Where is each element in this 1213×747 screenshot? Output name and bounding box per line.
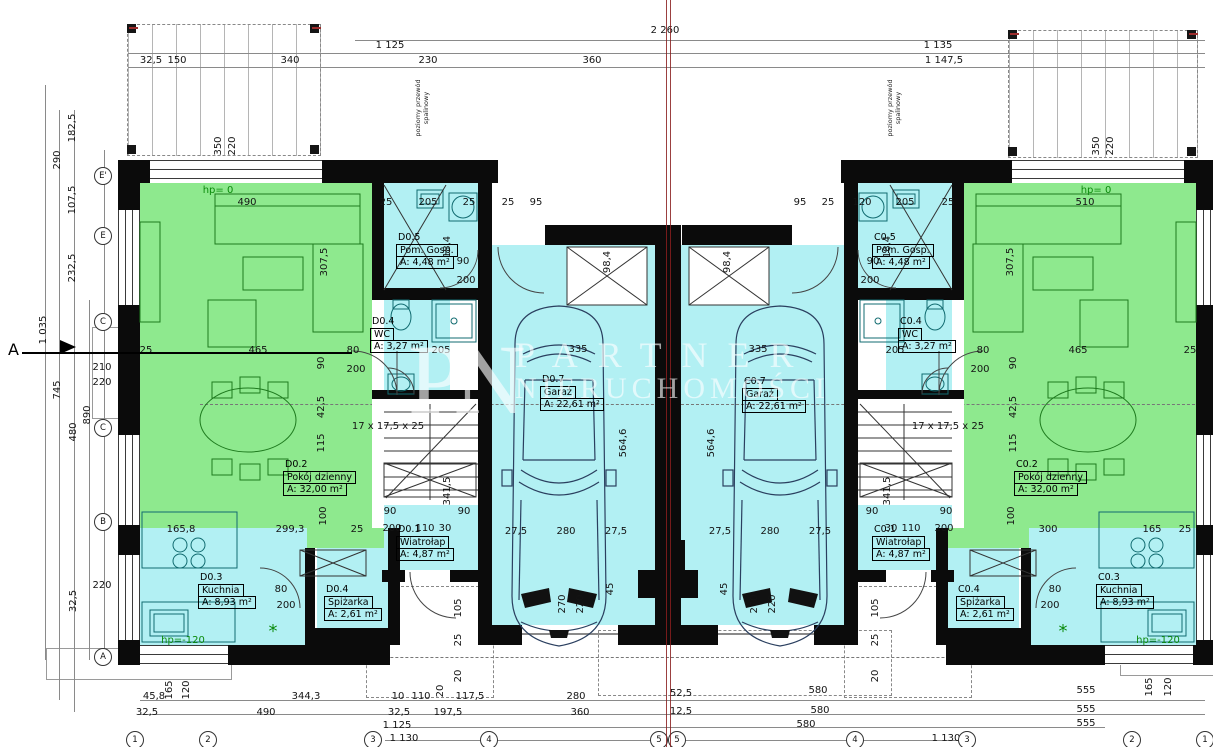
dimension-label: 580 <box>808 686 827 696</box>
dimension-line <box>718 633 814 635</box>
wall-segment <box>618 625 656 645</box>
section-mark-a: A <box>8 340 19 359</box>
dimension-label: 110 <box>415 524 434 534</box>
dimension-label: 480 <box>69 422 79 441</box>
room-name: Kuchnia <box>1096 584 1142 597</box>
dimension-label: 90 <box>457 257 470 267</box>
dimension-label: 45 <box>720 583 730 596</box>
dimension-label: 490 <box>256 708 275 718</box>
dimension-label: 90 <box>1009 357 1019 370</box>
room-fill-living-right-strip <box>948 528 1029 548</box>
dimension-label: 205 <box>418 198 437 208</box>
grid-bubble-2: 2 <box>1123 731 1141 747</box>
room-label-wc: D0.4WCA: 3,27 m² <box>370 316 428 353</box>
terrace-top-right <box>1008 30 1198 158</box>
dimension-label: 110 <box>411 692 430 702</box>
dimension-label: 200 <box>382 524 401 534</box>
dimension-label: 80 <box>347 346 360 356</box>
dimension-label: 32,5 <box>136 708 158 718</box>
dimension-label: 32,5 <box>69 590 79 612</box>
dimension-label: 95 <box>530 198 543 208</box>
dimension-label: 490 <box>237 198 256 208</box>
room-name: Spiżarka <box>956 596 1005 609</box>
dimension-label: 20 <box>436 685 446 698</box>
dimension-label: 465 <box>1068 346 1087 356</box>
grid-bubble-3: 3 <box>958 731 976 747</box>
dimension-label: 25 <box>454 634 464 647</box>
room-area: A: 4,48 m² <box>872 256 930 269</box>
dimension-label: 90 <box>866 507 879 517</box>
dimension-label: 117,5 <box>456 692 485 702</box>
dimension-label: 25 <box>380 198 393 208</box>
dimension-label: 165 <box>1145 677 1155 696</box>
dimension-label: 200 <box>970 365 989 375</box>
drawing-element: spalinowy <box>422 92 430 124</box>
survey-mark <box>1189 33 1198 35</box>
dimension-label: 42,5 <box>1009 396 1019 418</box>
wall-segment <box>936 628 1031 645</box>
dimension-label: 98,4 <box>723 251 733 273</box>
room-code: D0.3 <box>200 572 256 583</box>
grid-bubble-c: C <box>94 313 112 331</box>
dimension-label: 90 <box>317 357 327 370</box>
dimension-label: 232,5 <box>68 254 78 283</box>
room-name: Wiatrołap <box>396 536 449 549</box>
dimension-label: 465 <box>248 346 267 356</box>
dimension-label: 115 <box>1009 433 1019 452</box>
dimension-line <box>522 633 618 635</box>
wall-segment <box>1021 548 1031 628</box>
dimension-label: 42,5 <box>317 396 327 418</box>
room-name: Garaż <box>540 386 576 399</box>
room-area: A: 8,93 m² <box>1096 596 1154 609</box>
dimension-label: 115 <box>317 433 327 452</box>
dimension-label: 20 <box>871 670 881 683</box>
dimension-label: 107,5 <box>68 186 78 215</box>
room-area: A: 32,00 m² <box>283 483 347 496</box>
dimension-label: 580 <box>796 720 815 730</box>
dimension-label: 25 <box>1179 525 1192 535</box>
room-code: D0.7 <box>542 374 604 385</box>
dimension-line <box>355 40 1205 41</box>
dimension-label: 27,5 <box>605 527 627 537</box>
dimension-label: 90 <box>458 507 471 517</box>
wall-segment <box>682 225 792 245</box>
dimension-label: 197,5 <box>434 708 463 718</box>
grid-bubble-2: 2 <box>199 731 217 747</box>
wall-segment <box>372 390 478 399</box>
pergola-post <box>1187 147 1196 156</box>
dimension-label: 555 <box>1076 705 1095 715</box>
dimension-label: 200 <box>1040 601 1059 611</box>
dimension-label: 200 <box>346 365 365 375</box>
wall-segment <box>305 548 315 628</box>
room-code: D0.4 <box>372 316 428 327</box>
room-fill-garage-left <box>492 245 655 625</box>
room-name: Pokój dzienny <box>283 471 356 484</box>
dimension-line <box>45 85 46 660</box>
drawing-element: spalinowy <box>894 92 902 124</box>
dimension-label: * <box>269 627 278 637</box>
dimension-label: 120 <box>852 198 871 208</box>
dimension-label: 25 <box>942 198 955 208</box>
room-code: D0.4 <box>326 584 382 595</box>
dimension-label: 335 <box>748 345 767 355</box>
door-opening <box>405 570 450 582</box>
dimension-label: 25 <box>140 346 153 356</box>
dimension-label: 17 x 17,5 x 25 <box>352 422 424 432</box>
dimension-label: 220 <box>92 378 111 388</box>
dimension-label: 45,8 <box>143 692 165 702</box>
dimension-label: 299,3 <box>276 525 305 535</box>
dimension-label: 220 <box>576 594 586 613</box>
dimension-label: 280 <box>760 527 779 537</box>
dimension-label: 280 <box>556 527 575 537</box>
room-label-gara-: D0.7GarażA: 22,61 m² <box>540 374 604 411</box>
dimension-label: 564,6 <box>707 429 717 458</box>
dimension-label: 335 <box>568 345 587 355</box>
window <box>1012 160 1184 183</box>
dimension-label: 100 <box>1007 506 1017 525</box>
window <box>118 435 140 525</box>
window <box>140 645 228 665</box>
dimension-label: 360 <box>582 56 601 66</box>
dimension-label: 220 <box>92 581 111 591</box>
dimension-label: 555 <box>1076 719 1095 729</box>
drawing-element <box>875 318 881 324</box>
dimension-line <box>89 300 90 660</box>
staircase-left <box>372 398 478 502</box>
grid-bubble-3: 3 <box>364 731 382 747</box>
dimension-label: 105 <box>871 598 881 617</box>
room-code: C0.3 <box>1098 572 1154 583</box>
window <box>118 210 140 305</box>
wall-segment <box>858 288 964 300</box>
room-label-gara-: C0.7GarażA: 22,61 m² <box>742 376 806 413</box>
room-code: C0.7 <box>744 376 806 387</box>
survey-mark <box>312 27 321 29</box>
dimension-label: 27,5 <box>709 527 731 537</box>
dimension-label: 890 <box>83 405 93 424</box>
window <box>1105 645 1193 665</box>
dimension-label: 90 <box>384 507 397 517</box>
dimension-label: hp=-120 <box>1136 636 1180 646</box>
room-label-kuchnia: C0.3KuchniaA: 8,93 m² <box>1096 572 1154 609</box>
dimension-label: 30 <box>885 524 898 534</box>
dimension-label: 25 <box>463 198 476 208</box>
dimension-label: 350 <box>1092 136 1102 155</box>
door-opening <box>886 570 931 582</box>
dimension-label: 32,5 <box>140 56 162 66</box>
wall-segment <box>490 625 522 645</box>
dimension-label: 18,4 <box>883 236 893 258</box>
grid-bubble-e: E <box>94 227 112 245</box>
room-code: C0.4 <box>958 584 1014 595</box>
room-area: A: 4,87 m² <box>872 548 930 561</box>
dimension-label: 200 <box>276 601 295 611</box>
dimension-label: 45 <box>606 583 616 596</box>
drawing-element: poziomy przewód <box>886 79 894 136</box>
dimension-label: 307,5 <box>1006 248 1016 277</box>
pergola-post <box>1008 147 1017 156</box>
grid-bubble-a: A <box>94 648 112 666</box>
dimension-label: 12,5 <box>670 707 692 717</box>
dimension-label: 165 <box>165 680 175 699</box>
dimension-label: 32,5 <box>388 708 410 718</box>
window <box>1196 210 1213 305</box>
dimension-label: 120 <box>1164 677 1174 696</box>
dimension-label: 1 147,5 <box>925 56 963 66</box>
party-wall-axis <box>670 0 671 747</box>
dimension-label: 341,5 <box>883 477 893 506</box>
flue-note: poziomy przewódspalinowy <box>886 43 910 173</box>
room-label-wc: C0.4WCA: 3,27 m² <box>898 316 956 353</box>
party-wall-axis <box>666 0 667 747</box>
room-label-pok-j-dzienny: C0.2Pokój dziennyA: 32,00 m² <box>1014 459 1087 496</box>
dimension-label: 20 <box>454 670 464 683</box>
room-area: A: 3,27 m² <box>370 340 428 353</box>
staircase-right <box>858 398 964 502</box>
dimension-label: 200 <box>456 276 475 286</box>
room-area: A: 32,00 m² <box>1014 483 1078 496</box>
dimension-label: 25 <box>502 198 515 208</box>
dimension-label: 340 <box>280 56 299 66</box>
survey-mark <box>1010 33 1019 35</box>
drawing-element: poziomy przewód <box>414 79 422 136</box>
room-area: A: 2,61 m² <box>956 608 1014 621</box>
dimension-label: 100 <box>319 506 329 525</box>
room-area: A: 2,61 m² <box>324 608 382 621</box>
dimension-label: 205 <box>431 346 450 356</box>
dimension-label: 80 <box>275 585 288 595</box>
dimension-label: 165,8 <box>167 525 196 535</box>
dimension-label: 110 <box>901 524 920 534</box>
room-name: Garaż <box>742 388 778 401</box>
dimension-label: 25 <box>822 198 835 208</box>
dimension-label: 25 <box>1184 346 1197 356</box>
dimension-label: 300 <box>1038 525 1057 535</box>
dimension-label: 290 <box>53 150 63 169</box>
section-line <box>22 352 352 354</box>
dimension-label: 1 035 <box>39 316 49 345</box>
dimension-label: 10 <box>392 692 405 702</box>
dimension-label: 230 <box>418 56 437 66</box>
grid-bubble-1: 1 <box>126 731 144 747</box>
dimension-label: 95 <box>794 198 807 208</box>
dimension-label: 27,5 <box>809 527 831 537</box>
dimension-label: 80 <box>977 346 990 356</box>
dimension-label: 18,4 <box>443 236 453 258</box>
window <box>118 555 140 640</box>
grid-bubble-e': E' <box>94 167 112 185</box>
dimension-label: 182,5 <box>68 114 78 143</box>
grid-bubble-4: 4 <box>480 731 498 747</box>
dimension-label: 564,6 <box>619 429 629 458</box>
dimension-label: 90 <box>940 507 953 517</box>
room-name: Pokój dzienny <box>1014 471 1087 484</box>
pergola-post <box>310 145 319 154</box>
dimension-label: 205 <box>885 346 904 356</box>
grid-bubble-b: B <box>94 513 112 531</box>
room-area: A: 8,93 m² <box>198 596 256 609</box>
wall-segment <box>372 288 478 300</box>
dimension-label: 1 130 <box>932 734 961 744</box>
dimension-label: 200 <box>934 524 953 534</box>
wall-segment <box>305 628 400 645</box>
dimension-line <box>59 110 60 700</box>
room-area: A: 4,87 m² <box>396 548 454 561</box>
dimension-label: 341,5 <box>443 477 453 506</box>
room-name: Wiatrołap <box>872 536 925 549</box>
window <box>1196 435 1213 525</box>
dimension-label: 52,5 <box>670 689 692 699</box>
drawing-element <box>451 318 457 324</box>
dimension-label: 270 <box>750 594 760 613</box>
window <box>150 160 322 183</box>
dimension-label: 25 <box>351 525 364 535</box>
dimension-label: 1 130 <box>390 734 419 744</box>
room-code: C0.4 <box>900 316 956 327</box>
dimension-label: 555 <box>1076 686 1095 696</box>
room-code: C0.2 <box>1016 459 1087 470</box>
room-label-spi-arka: D0.4SpiżarkaA: 2,61 m² <box>324 584 382 621</box>
room-area: A: 22,61 m² <box>742 400 806 413</box>
dimension-label: 350 <box>214 136 224 155</box>
dimension-label: * <box>1059 627 1068 637</box>
dimension-label: 2 260 <box>651 26 680 36</box>
dimension-label: 220 <box>228 136 238 155</box>
room-name: Spiżarka <box>324 596 373 609</box>
dimension-label: 205 <box>895 198 914 208</box>
room-area: A: 3,27 m² <box>898 340 956 353</box>
room-area: A: 22,61 m² <box>540 398 604 411</box>
wall-segment <box>814 625 846 645</box>
dimension-label: 30 <box>439 524 452 534</box>
dimension-label: 510 <box>1075 198 1094 208</box>
dimension-label: 120 <box>182 680 192 699</box>
dimension-label: 220 <box>1106 136 1116 155</box>
dimension-label: 210 <box>92 363 111 373</box>
wall-segment <box>858 390 964 399</box>
wall-segment <box>638 570 698 598</box>
wall-segment <box>545 225 655 245</box>
grid-bubble-1: 1 <box>1196 731 1213 747</box>
dimension-label: 270 <box>558 594 568 613</box>
dimension-label: 1 135 <box>924 41 953 51</box>
dimension-label: hp= 0 <box>1081 186 1112 196</box>
pergola-post <box>127 145 136 154</box>
dimension-label: 80 <box>1049 585 1062 595</box>
dimension-label: 280 <box>566 692 585 702</box>
dimension-label: 1 125 <box>376 41 405 51</box>
dimension-label: 1 125 <box>383 721 412 731</box>
room-label-pok-j-dzienny: D0.2Pokój dziennyA: 32,00 m² <box>283 459 356 496</box>
dimension-label: 27,5 <box>505 527 527 537</box>
dimension-label: 25 <box>871 634 881 647</box>
axis-dashline <box>200 404 1205 405</box>
dimension-label: 105 <box>454 598 464 617</box>
dimension-label: 17 x 17,5 x 25 <box>912 422 984 432</box>
grid-bubble-c: C <box>94 419 112 437</box>
dimension-label: 360 <box>570 708 589 718</box>
room-label-spi-arka: C0.4SpiżarkaA: 2,61 m² <box>956 584 1014 621</box>
dimension-line <box>385 727 1105 728</box>
dimension-label: 90 <box>867 257 880 267</box>
room-name: Kuchnia <box>198 584 244 597</box>
dimension-label: 200 <box>860 276 879 286</box>
dimension-label: 220 <box>768 594 778 613</box>
dimension-label: 165 <box>1142 525 1161 535</box>
grid-bubble-4: 4 <box>846 731 864 747</box>
terrace-top-left <box>127 24 321 156</box>
dimension-label: 150 <box>167 56 186 66</box>
wall-segment <box>680 625 718 645</box>
dimension-label: 98,4 <box>603 251 613 273</box>
dimension-label: hp= 0 <box>203 186 234 196</box>
survey-mark <box>129 27 138 29</box>
dimension-label: 745 <box>53 380 63 399</box>
floor-plan-canvas: A poziomy przewódspalinowy poziomy przew… <box>0 0 1213 747</box>
dimension-label: 580 <box>810 706 829 716</box>
window <box>1196 555 1213 640</box>
dimension-label: hp=-120 <box>161 636 205 646</box>
room-label-kuchnia: D0.3KuchniaA: 8,93 m² <box>198 572 256 609</box>
dimension-label: 344,3 <box>292 692 321 702</box>
room-code: D0.2 <box>285 459 356 470</box>
dimension-label: 307,5 <box>320 248 330 277</box>
room-fill-living-left-strip <box>307 528 388 548</box>
